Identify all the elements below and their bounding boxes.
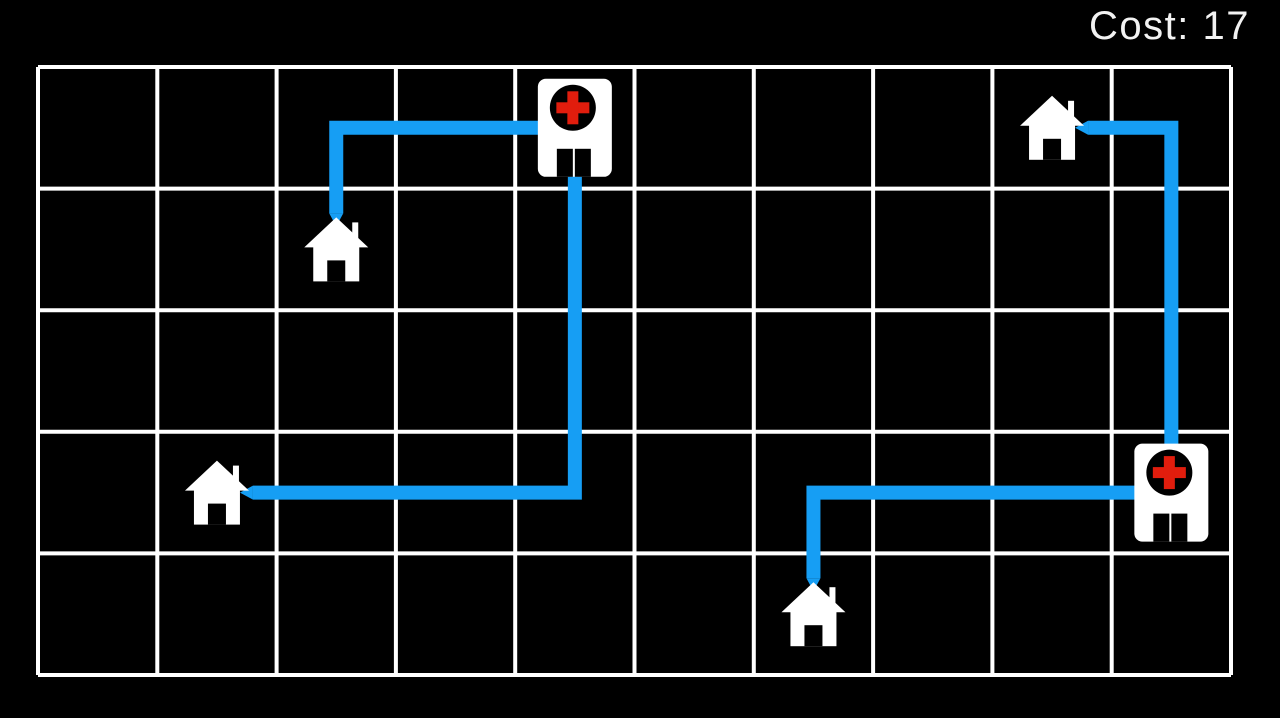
house-icon[interactable] — [781, 582, 845, 646]
house-icon[interactable] — [304, 217, 368, 281]
house-icon[interactable] — [1020, 96, 1084, 160]
route-layer — [240, 121, 1171, 591]
game-board[interactable] — [0, 0, 1280, 718]
house-icon[interactable] — [185, 461, 249, 525]
hospital-icon[interactable] — [1134, 444, 1208, 542]
cost-label: Cost: 17 — [1089, 4, 1250, 49]
game-stage: Cost: 17 — [0, 0, 1280, 718]
hospital-icon[interactable] — [538, 79, 612, 177]
